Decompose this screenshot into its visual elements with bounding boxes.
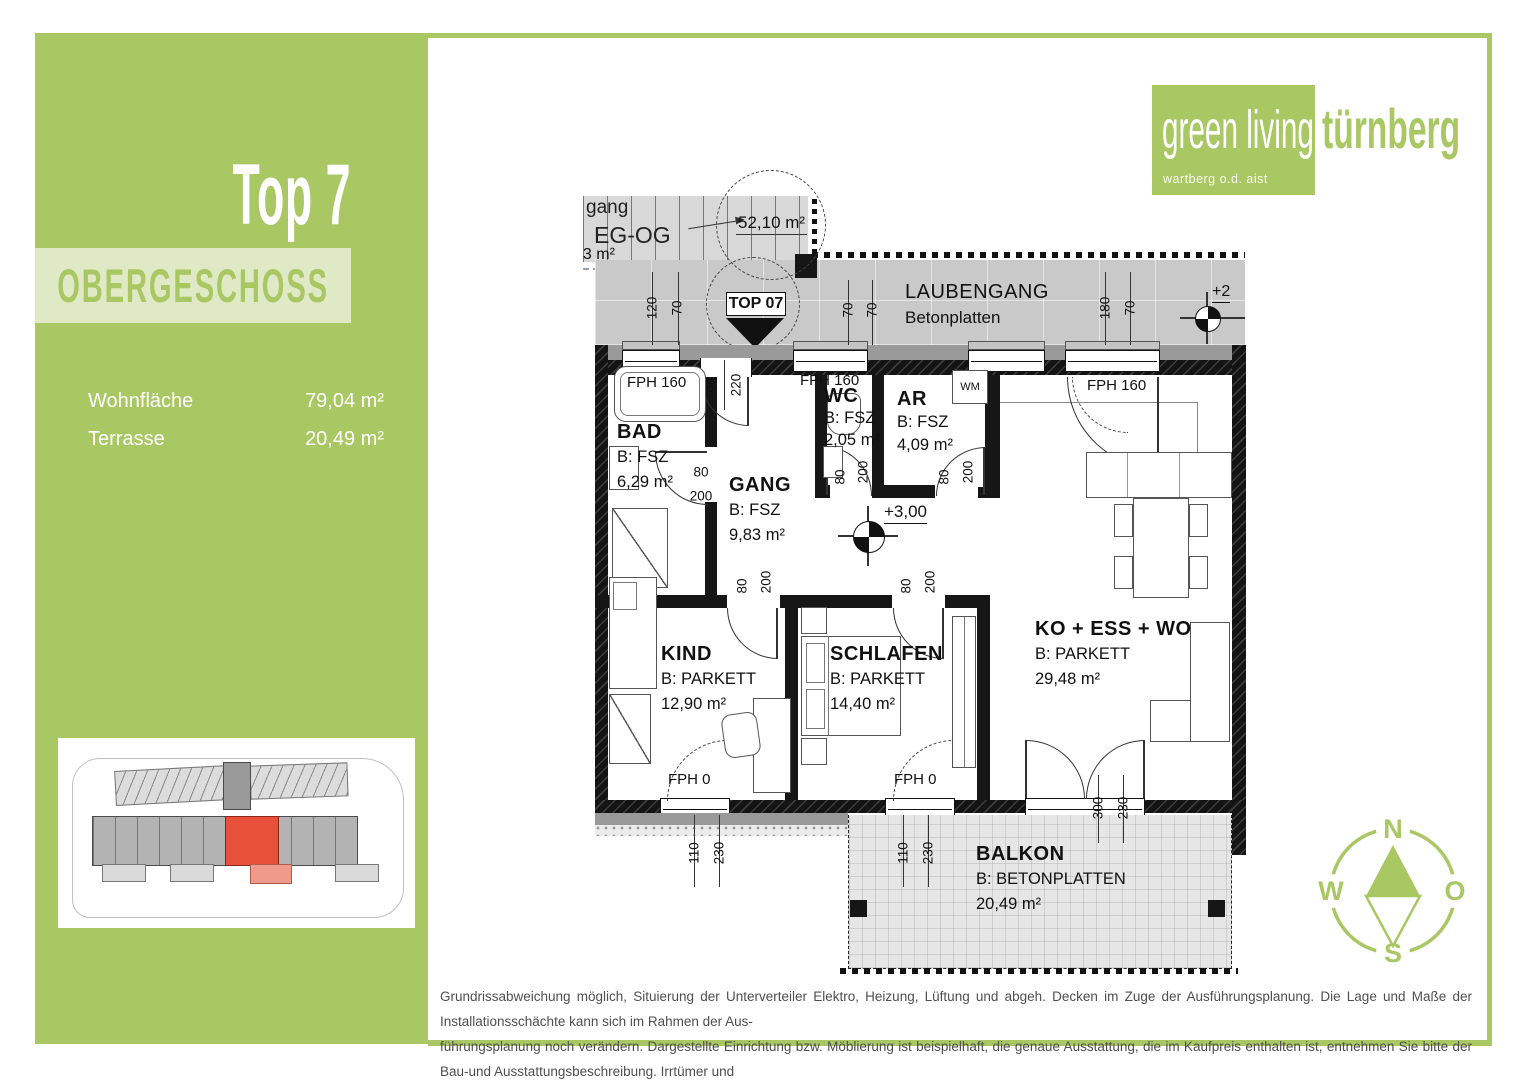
wardrobe — [952, 616, 976, 768]
stat-row-terrasse: Terrasse 20,49 m² — [88, 428, 384, 456]
frame-top — [428, 33, 1492, 38]
dim-line — [1130, 272, 1131, 345]
dim-line — [848, 280, 849, 345]
dim-line — [678, 272, 679, 345]
highlighted-unit — [225, 816, 279, 866]
logo-brand: türnberg — [1322, 96, 1460, 161]
room-floor: B: FSZ — [897, 411, 953, 434]
room-floor: B: FSZ — [617, 445, 673, 470]
dim-line — [872, 280, 873, 345]
stat-label: Wohnfläche — [88, 390, 193, 413]
room-name: KIND — [661, 642, 756, 667]
room-area: 9,83 m² — [729, 523, 791, 548]
chair — [1189, 556, 1208, 589]
stat-value: 20,49 m² — [305, 428, 384, 451]
nightstand — [801, 607, 827, 634]
room-floor: B: FSZ — [824, 407, 880, 429]
door-arc — [1086, 740, 1145, 799]
wall — [705, 502, 717, 608]
wardrobe — [609, 694, 651, 764]
compass-o: O — [1444, 876, 1465, 906]
post — [850, 900, 867, 917]
room-name: GANG — [729, 473, 791, 498]
room-area: 12,90 m² — [661, 692, 756, 717]
room-floor: B: FSZ — [729, 498, 791, 523]
dim-line — [1123, 775, 1124, 843]
logo-subtext: wartberg o.d. aist — [1163, 172, 1268, 186]
dim-line — [903, 815, 904, 887]
laubengang-title: LAUBENGANG — [905, 281, 1049, 304]
carport-strip — [114, 765, 231, 806]
room-area: 4,09 m² — [897, 434, 953, 457]
room-name: BAD — [617, 420, 673, 445]
room-name: AR — [897, 388, 953, 411]
post — [1208, 900, 1225, 917]
room-name: SCHLAFEN — [830, 642, 943, 667]
door-leaf — [776, 608, 778, 658]
window-label: FPH 160 — [627, 374, 686, 391]
wall — [977, 595, 990, 800]
wall — [780, 595, 892, 608]
dimension-label: 200 — [923, 571, 938, 594]
stat-row-wohnflaeche: Wohnfläche 79,04 m² — [88, 390, 384, 418]
disclaimer-line: Grundrissabweichung möglich, Situierung … — [440, 984, 1472, 1034]
room-label-kind: KIND B: PARKETT 12,90 m² — [661, 642, 756, 717]
compass: N O S W — [1310, 808, 1476, 974]
survey-point-icon — [1195, 306, 1221, 332]
window-label: FPH 160 — [1087, 377, 1146, 394]
floorplan-page: Top 7 OBERGESCHOSS Wohnfläche 79,04 m² T… — [0, 0, 1528, 1080]
room-label-gang: GANG B: FSZ 9,83 m² — [729, 473, 791, 548]
compass-n: N — [1383, 814, 1403, 844]
room-label-schlafen: SCHLAFEN B: PARKETT 14,40 m² — [830, 642, 943, 717]
sofa — [1190, 622, 1230, 742]
terrace — [170, 864, 214, 882]
dim-line — [724, 360, 725, 410]
door-leaf — [983, 447, 985, 495]
shower — [612, 508, 668, 588]
door-leaf — [747, 377, 749, 425]
compass-w: W — [1318, 876, 1344, 906]
room-name: WC — [824, 385, 880, 407]
wall-ledge — [595, 813, 848, 825]
room-label-bad: BAD B: FSZ 6,29 m² — [617, 420, 673, 495]
kitchen-counter — [1086, 452, 1232, 498]
bulkhead-line — [1197, 402, 1198, 452]
level-main: +3,00 — [884, 502, 927, 524]
room-area: 2,05 m² — [824, 429, 880, 451]
entrance-arrow-icon — [726, 318, 784, 348]
door-leaf — [1143, 740, 1145, 798]
washing-machine: WM — [952, 370, 988, 404]
room-floor: B: PARKETT — [1035, 642, 1192, 667]
stair-label: EG-OG — [594, 222, 671, 249]
disclaimer-line: führungsplanung noch verändern. Dargeste… — [440, 1034, 1472, 1080]
room-name: KO + ESS + WO — [1035, 617, 1192, 642]
chair — [1189, 504, 1208, 537]
dimension-label: 80 — [899, 578, 914, 593]
dim-line — [1105, 272, 1106, 345]
dim-line — [1098, 775, 1099, 843]
stair-tower — [223, 762, 251, 810]
terrace — [335, 864, 379, 882]
railing — [812, 252, 1245, 258]
compass-s: S — [1384, 938, 1402, 968]
nightstand — [801, 738, 827, 765]
logo: green living wartberg o.d. aist — [1152, 85, 1315, 195]
dim-line — [719, 815, 720, 887]
chair — [1114, 556, 1133, 589]
wall — [1232, 800, 1246, 855]
unit-marker: TOP 07 — [726, 292, 786, 316]
stair-label: gang — [586, 197, 628, 219]
room-area: 29,48 m² — [1035, 667, 1192, 692]
level-upper: +2 — [1212, 283, 1230, 303]
chair — [720, 711, 762, 760]
room-floor: B: BETONPLATTEN — [976, 867, 1126, 892]
entrance-opening — [700, 358, 752, 377]
terrace — [102, 864, 146, 882]
stair-circle-area: 52,10 m² — [736, 213, 807, 235]
wall — [595, 345, 608, 813]
room-label-ar: AR B: FSZ 4,09 m² — [897, 388, 953, 457]
unit-title: Top 7 — [187, 146, 351, 245]
dim-line — [694, 815, 695, 887]
carport-strip — [249, 762, 348, 799]
window-wc — [793, 341, 868, 375]
door-leaf — [1025, 740, 1027, 798]
bed-single — [609, 577, 657, 689]
dim-line — [652, 272, 653, 345]
highlighted-balcony — [250, 864, 292, 884]
laubengang-sub: Betonplatten — [905, 308, 1000, 328]
frame-right — [1487, 33, 1492, 1046]
dim-line — [928, 815, 929, 887]
wall — [872, 485, 935, 498]
room-area: 6,29 m² — [617, 470, 673, 495]
logo-text: green living — [1162, 99, 1314, 161]
dining-table — [1133, 498, 1189, 598]
dimension-label: 80 — [735, 578, 750, 593]
stat-value: 79,04 m² — [305, 390, 384, 413]
window-label: FPH 0 — [894, 771, 937, 788]
room-name: BALKON — [976, 842, 1126, 867]
room-label-balkon: BALKON B: BETONPLATTEN 20,49 m² — [976, 842, 1126, 917]
room-floor: B: PARKETT — [661, 667, 756, 692]
room-label-wohn: KO + ESS + WO B: PARKETT 29,48 m² — [1035, 617, 1192, 692]
floor-label: OBERGESCHOSS — [57, 258, 329, 313]
dimension-label: 200 — [759, 571, 774, 594]
door-arc — [1026, 740, 1085, 799]
siteplan-thumbnail — [58, 738, 415, 928]
room-area: 20,49 m² — [976, 892, 1126, 917]
floor-band: OBERGESCHOSS — [35, 248, 351, 323]
gravel-strip — [595, 825, 848, 836]
room-label-wc: WC B: FSZ 2,05 m² — [824, 385, 880, 451]
wall — [1232, 345, 1246, 813]
disclaimer: Grundrissabweichung möglich, Situierung … — [440, 984, 1472, 1080]
railing — [840, 968, 1238, 974]
window-label: FPH 0 — [668, 771, 711, 788]
room-floor: B: PARKETT — [830, 667, 943, 692]
french-window-wohn — [1065, 341, 1160, 375]
survey-point-icon — [853, 521, 885, 553]
stat-label: Terrasse — [88, 428, 165, 451]
compass-needle-north — [1366, 845, 1420, 896]
room-area: 14,40 m² — [830, 692, 943, 717]
chair — [1114, 504, 1133, 537]
